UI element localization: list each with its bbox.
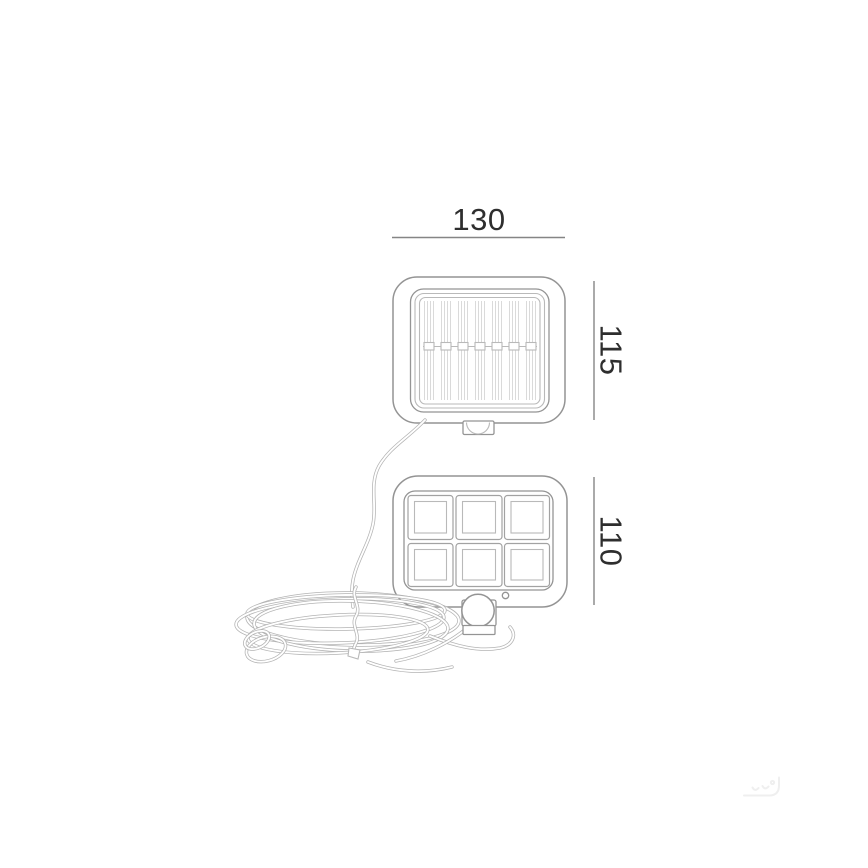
dimension-label-lamp-height: 110 xyxy=(594,516,629,567)
solar-light-diagram: 130 115 110 xyxy=(0,0,868,868)
pir-sensor-dome xyxy=(462,594,494,626)
solar-cell-area xyxy=(420,298,541,405)
indicator-led xyxy=(502,592,508,598)
dimension-label-width: 130 xyxy=(452,202,505,237)
led-flood-light xyxy=(393,476,567,607)
solar-panel xyxy=(393,277,565,435)
cable-tie-tag xyxy=(348,648,360,659)
sensor-base xyxy=(463,626,495,635)
solar-busbar-connectors xyxy=(424,343,536,351)
technical-drawing-canvas: 130 115 110 xyxy=(0,0,868,868)
cable-coil xyxy=(235,591,459,666)
dimension-label-panel-height: 115 xyxy=(594,325,629,376)
watermark-fragment xyxy=(744,778,779,796)
